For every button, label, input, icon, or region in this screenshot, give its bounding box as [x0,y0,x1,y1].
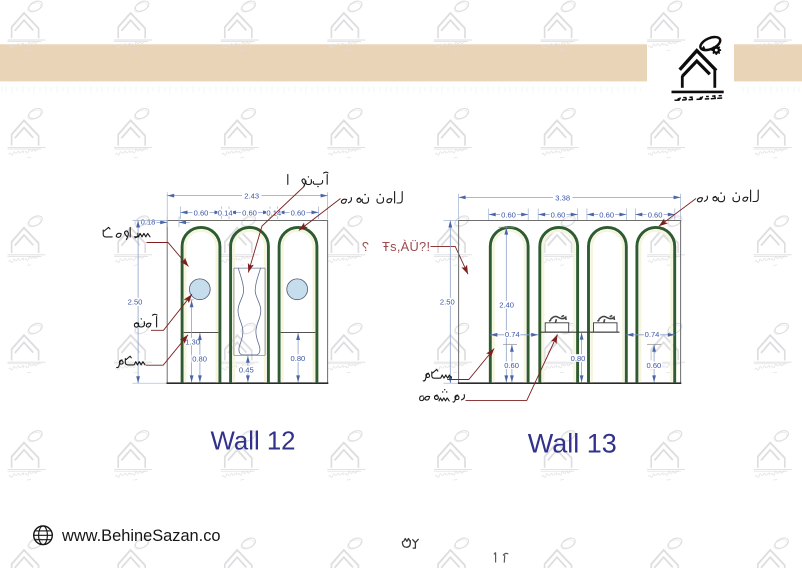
svg-text:www.BehineSazan.co: www.BehineSazan.co [61,527,221,545]
svg-text:0.60: 0.60 [501,211,516,220]
svg-text:2.50: 2.50 [128,298,143,307]
svg-text:Wall 12: Wall 12 [210,428,295,456]
svg-text:0.60: 0.60 [647,361,662,370]
svg-text:0.60: 0.60 [648,211,663,220]
svg-text:2.43: 2.43 [244,192,259,201]
svg-text:0.60: 0.60 [599,211,614,220]
svg-text:3.38: 3.38 [555,194,570,203]
svg-text:0.45: 0.45 [239,366,254,375]
svg-text:Ŧs,ÀÜ?!: Ŧs,ÀÜ?! [382,239,430,254]
svg-text:1.30: 1.30 [185,337,200,346]
svg-text:0.80: 0.80 [192,354,207,363]
svg-text:0.14: 0.14 [218,208,233,217]
svg-text:?: ? [362,240,369,254]
svg-text:Wall 13: Wall 13 [528,429,617,459]
svg-text:0.60: 0.60 [291,208,306,217]
svg-text:0.80: 0.80 [571,354,586,363]
svg-text:0.60: 0.60 [194,208,209,217]
svg-text:0.80: 0.80 [291,354,306,363]
svg-text:0.18: 0.18 [141,218,156,227]
svg-text:0.60: 0.60 [242,208,257,217]
svg-text:2.50: 2.50 [440,298,455,307]
svg-text:2.40: 2.40 [499,301,514,310]
svg-text:0.60: 0.60 [551,211,566,220]
svg-text:0.60: 0.60 [504,361,519,370]
svg-text:0.74: 0.74 [645,330,660,339]
svg-text:0.74: 0.74 [505,330,520,339]
